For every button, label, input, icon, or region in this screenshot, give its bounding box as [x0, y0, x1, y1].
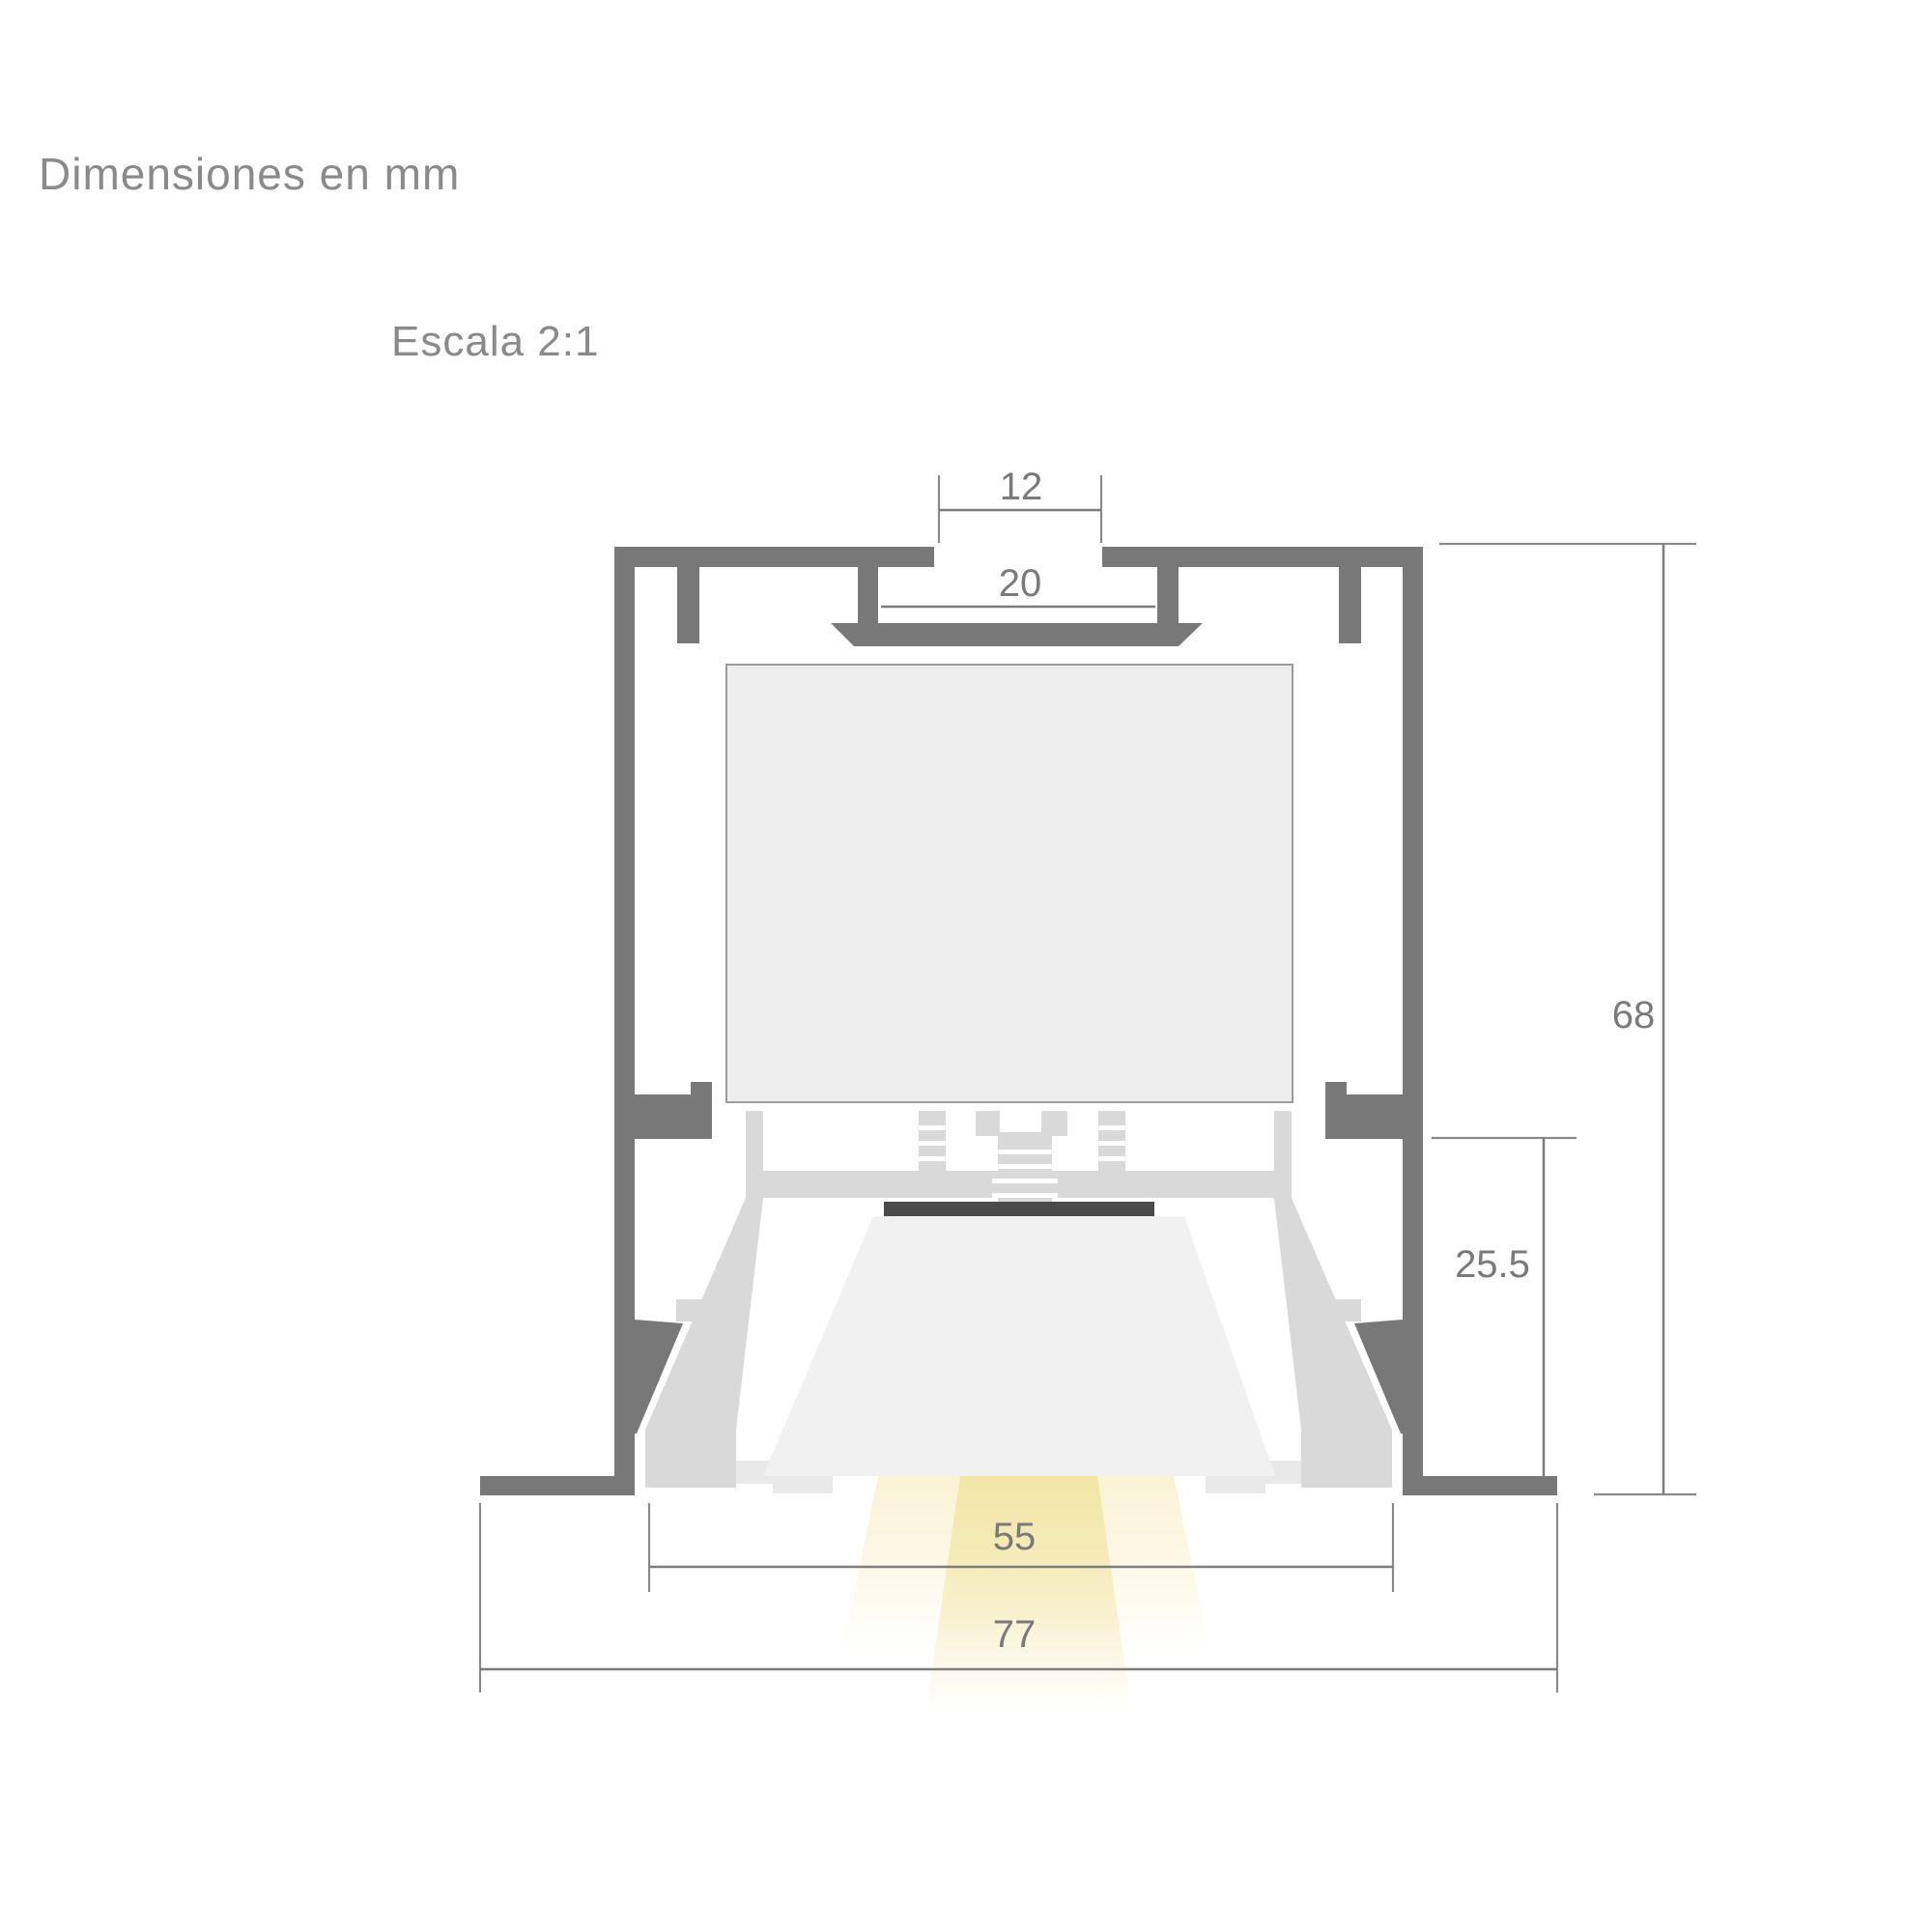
scale-label: Escala 2:1 [391, 318, 599, 365]
left-spring-notch [914, 1141, 951, 1146]
dim-value-55: 55 [993, 1516, 1037, 1558]
left-clip-tab [676, 1299, 711, 1321]
dim-value-12: 12 [1000, 466, 1043, 508]
right-spring-notch [1094, 1125, 1130, 1130]
dim-value-20: 20 [999, 562, 1042, 605]
channel-left-wall [858, 567, 878, 627]
profile-top-bar-left [614, 547, 934, 567]
left-spring-notch [914, 1156, 951, 1161]
dimension-12: 12 [939, 466, 1101, 543]
dimension-25-5: 25.5 [1432, 1138, 1577, 1476]
screw-thread-notch [992, 1150, 1058, 1154]
profile-left-wall [614, 547, 635, 1495]
diffuser-foot-right [1206, 1476, 1265, 1493]
right-spring-notch [1094, 1141, 1130, 1146]
dim-value-77: 77 [993, 1613, 1037, 1656]
led-strip-bar [884, 1202, 1154, 1216]
dimension-68: 68 [1439, 544, 1696, 1494]
light-beam [842, 1476, 1209, 1715]
dim-value-25-5: 25.5 [1455, 1243, 1530, 1286]
diffuser-foot-left [773, 1476, 833, 1493]
profile-right-wall [1403, 547, 1423, 1495]
led-driver-board [726, 665, 1293, 1102]
dimension-20: 20 [881, 562, 1155, 607]
dim-value-68: 68 [1612, 994, 1656, 1037]
profile-right-flange [1403, 1476, 1557, 1495]
profile-left-flange [480, 1476, 635, 1495]
page-title: Dimensiones en mm [39, 149, 460, 199]
lens-left-rim [746, 1111, 763, 1171]
light-beam-inner [925, 1476, 1132, 1715]
screw-thread-notch [992, 1193, 1058, 1198]
right-stub-hook [1325, 1082, 1403, 1139]
channel-bottom-bar [831, 623, 1203, 646]
right-reflector-foot [1301, 1430, 1392, 1488]
diffuser [763, 1216, 1275, 1493]
profile-top-bar-right [1102, 547, 1423, 567]
right-clip-tab [1326, 1299, 1361, 1321]
screw-thread-notch [992, 1179, 1058, 1183]
channel-right-wall [1157, 567, 1179, 627]
left-spring-notch [914, 1125, 951, 1130]
diffuser-body [763, 1216, 1275, 1476]
left-reflector-foot [645, 1430, 736, 1488]
center-screw-slot [1000, 1111, 1041, 1132]
lens-right-rim [1274, 1111, 1292, 1171]
profile-cross-section-diagram: Dimensiones en mm Escala 2:1 [0, 0, 1932, 1932]
technical-drawing-page: Dimensiones en mm Escala 2:1 [0, 0, 1932, 1932]
right-spring-notch [1094, 1156, 1130, 1161]
profile-right-hanging-leg [1339, 567, 1361, 643]
left-stub-hook [635, 1082, 712, 1139]
screw-thread-notch [992, 1164, 1058, 1169]
profile-left-hanging-leg [677, 567, 699, 643]
